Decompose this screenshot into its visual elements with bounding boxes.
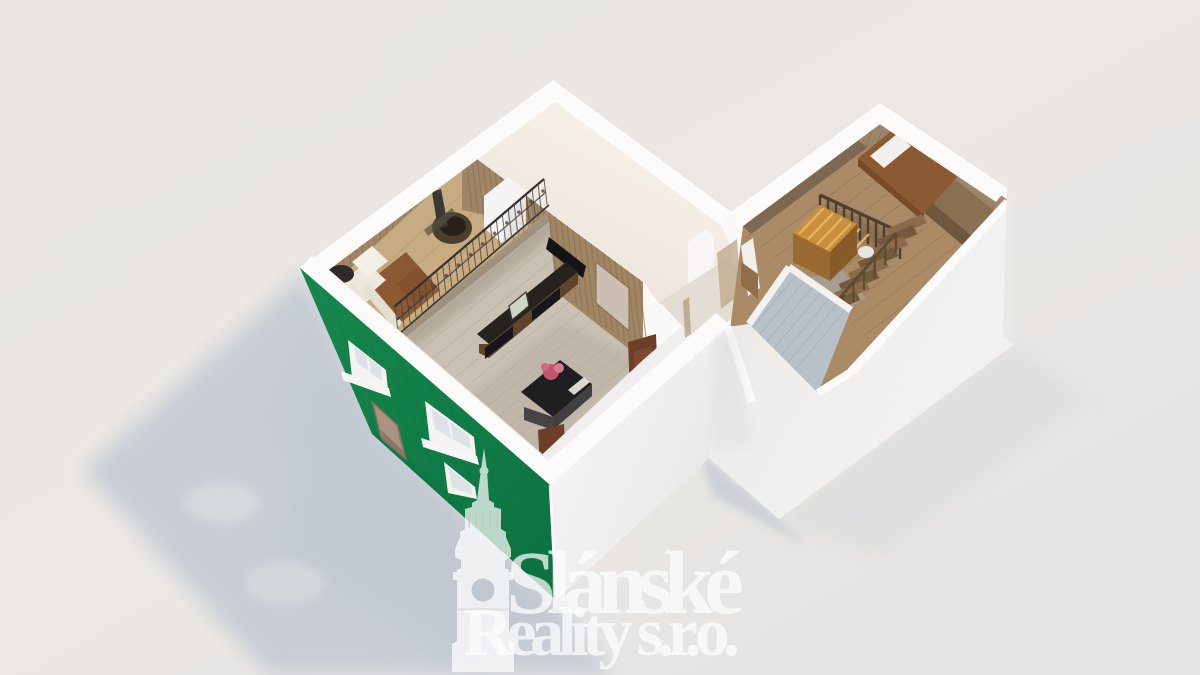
svg-text:Reality s.r.o.: Reality s.r.o. bbox=[463, 594, 740, 670]
